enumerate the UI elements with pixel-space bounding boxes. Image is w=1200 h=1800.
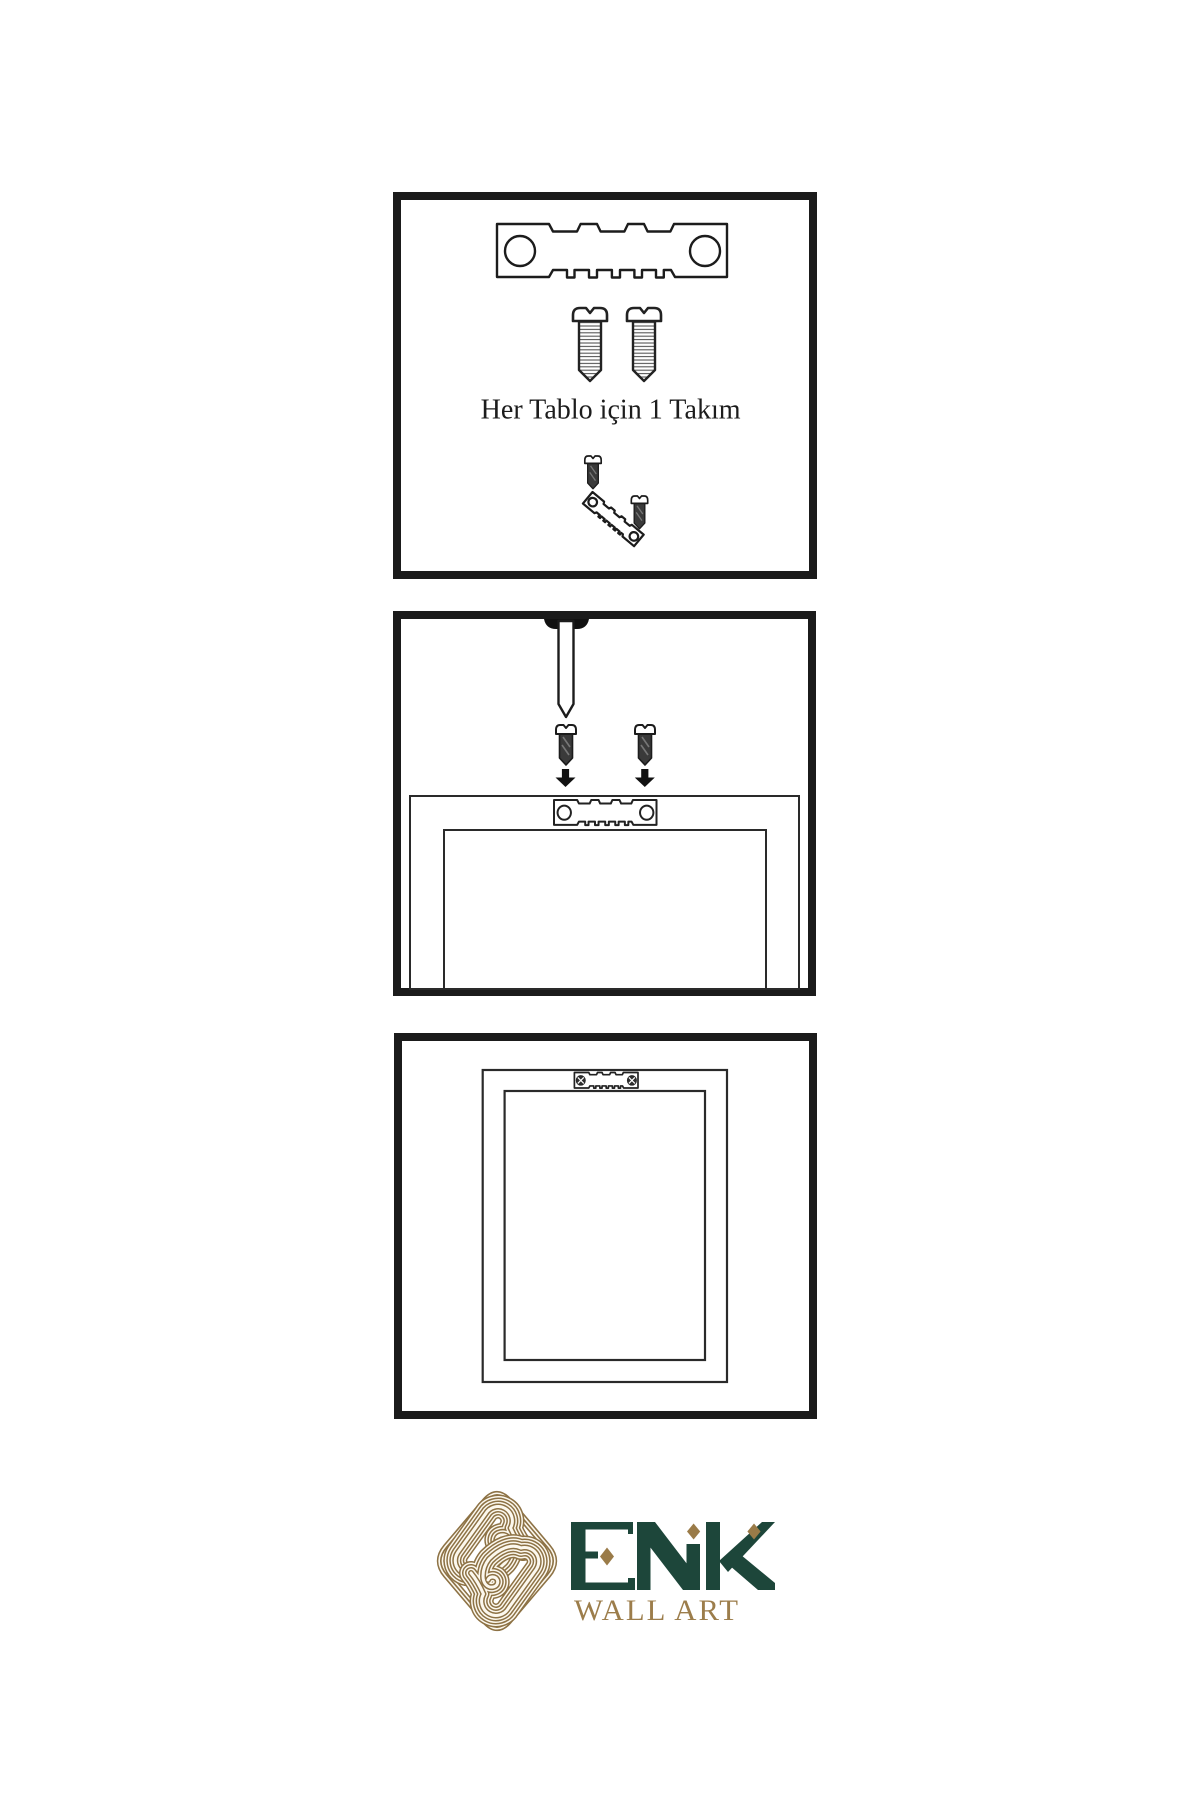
svg-text:WALL ART: WALL ART xyxy=(574,1594,740,1627)
svg-text:Her Tablo için 1 Takım: Her Tablo için 1 Takım xyxy=(481,395,741,426)
